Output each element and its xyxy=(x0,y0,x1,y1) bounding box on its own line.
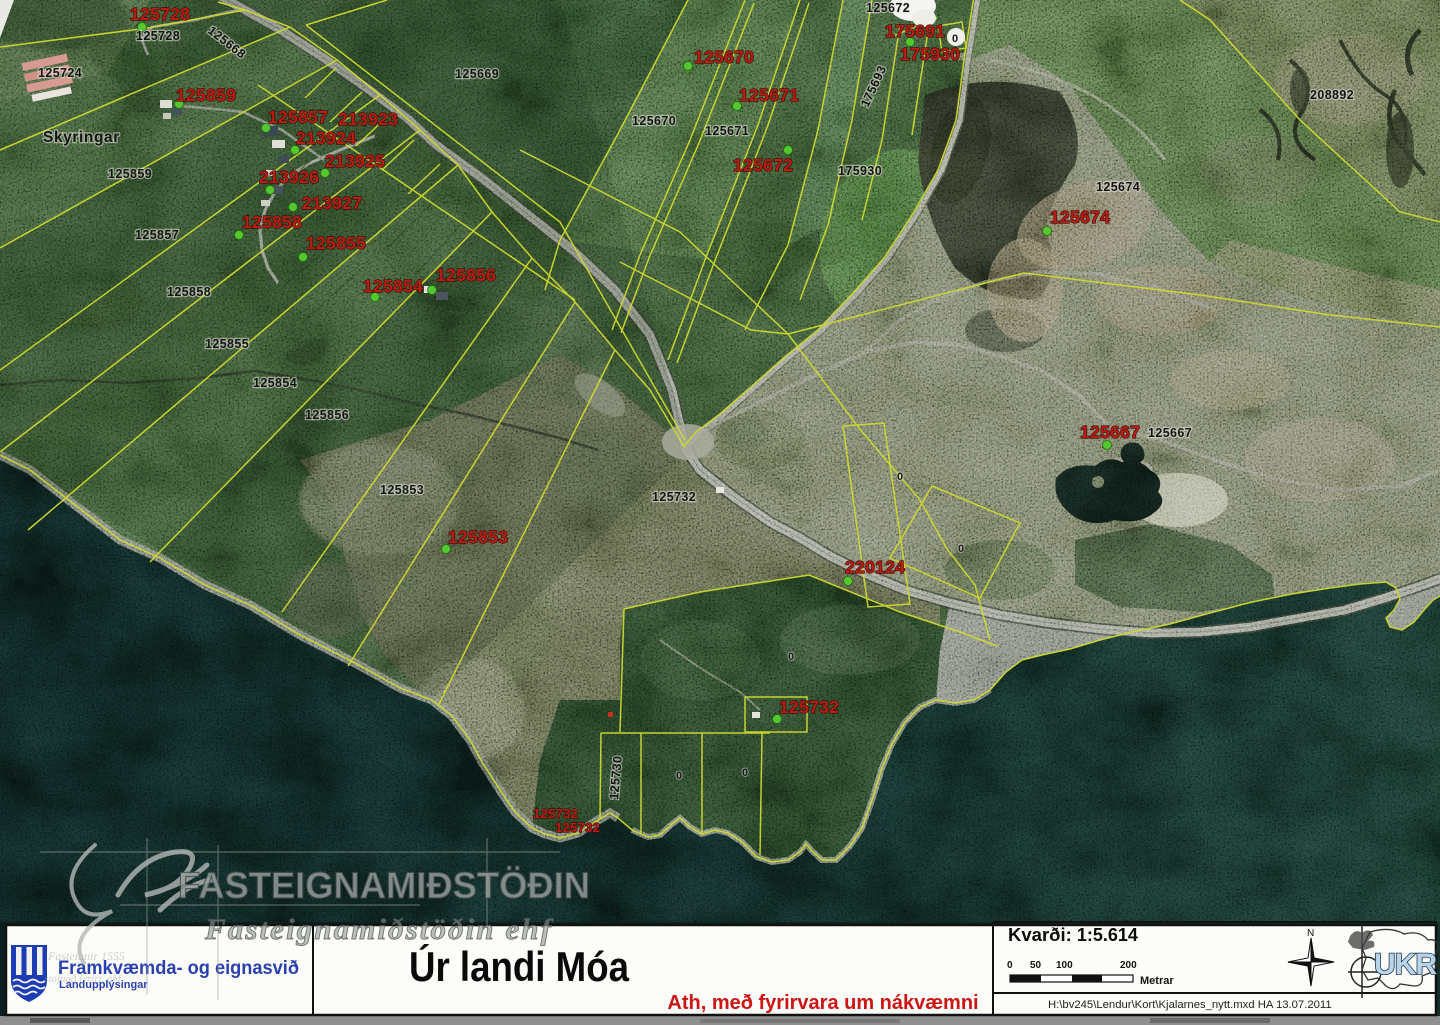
svg-text:125858: 125858 xyxy=(167,285,211,299)
svg-text:125853: 125853 xyxy=(380,483,424,497)
svg-text:175930: 175930 xyxy=(838,164,882,178)
svg-text:0: 0 xyxy=(676,770,682,782)
svg-text:0: 0 xyxy=(958,543,964,555)
svg-text:125855: 125855 xyxy=(306,233,366,253)
svg-text:125857: 125857 xyxy=(268,107,328,127)
svg-text:125857: 125857 xyxy=(135,228,179,242)
svg-text:125670: 125670 xyxy=(694,47,754,67)
svg-text:125674: 125674 xyxy=(1096,180,1140,194)
svg-text:0: 0 xyxy=(742,767,748,779)
svg-text:Kvarði: 1:5.614: Kvarði: 1:5.614 xyxy=(1008,924,1138,945)
svg-text:N: N xyxy=(1307,928,1314,939)
svg-text:220124: 220124 xyxy=(845,557,905,577)
svg-text:0: 0 xyxy=(788,651,794,663)
svg-text:200: 200 xyxy=(1120,960,1137,971)
svg-text:125670: 125670 xyxy=(632,114,676,128)
svg-text:175691: 175691 xyxy=(885,21,945,41)
svg-text:125671: 125671 xyxy=(739,85,799,105)
svg-text:UKR: UKR xyxy=(1374,948,1437,981)
svg-text:100: 100 xyxy=(1056,960,1073,971)
svg-text:125732: 125732 xyxy=(779,697,839,717)
svg-text:0: 0 xyxy=(897,471,903,483)
svg-text:125672: 125672 xyxy=(866,1,910,15)
svg-text:125728: 125728 xyxy=(130,4,190,24)
svg-text:H:\bv245\Lendur\Kort\Kjalarnes: H:\bv245\Lendur\Kort\Kjalarnes_nytt.mxd … xyxy=(1048,999,1332,1011)
svg-text:213926: 213926 xyxy=(259,167,319,187)
svg-text:213923: 213923 xyxy=(338,109,398,129)
svg-text:Metrar: Metrar xyxy=(1140,975,1174,987)
svg-text:125732: 125732 xyxy=(533,806,578,821)
svg-text:50: 50 xyxy=(1030,960,1042,971)
svg-text:125859: 125859 xyxy=(176,85,236,105)
svg-text:175930: 175930 xyxy=(900,44,960,64)
svg-text:213924: 213924 xyxy=(296,128,356,148)
svg-text:213925: 213925 xyxy=(325,151,385,171)
svg-text:125855: 125855 xyxy=(205,337,249,351)
svg-text:Skyringar: Skyringar xyxy=(43,129,120,146)
svg-text:125667: 125667 xyxy=(1148,426,1192,440)
svg-text:125732: 125732 xyxy=(652,490,696,504)
svg-text:Ath, með fyrirvara um nákvæmni: Ath, með fyrirvara um nákvæmni xyxy=(667,992,978,1014)
svg-text:125674: 125674 xyxy=(1050,207,1110,227)
svg-text:Fasteignamiðstöðin ehf: Fasteignamiðstöðin ehf xyxy=(204,913,554,946)
svg-text:125724: 125724 xyxy=(38,66,82,80)
svg-text:213927: 213927 xyxy=(302,193,362,213)
svg-text:125728: 125728 xyxy=(136,29,180,43)
svg-text:125732: 125732 xyxy=(555,820,600,835)
svg-text:Úr landi Móa: Úr landi Móa xyxy=(409,942,630,990)
svg-text:125856: 125856 xyxy=(305,408,349,422)
svg-text:FASTEIGNAMIÐSTÖÐIN: FASTEIGNAMIÐSTÖÐIN xyxy=(178,865,590,906)
svg-text:0: 0 xyxy=(1007,960,1013,971)
svg-text:Fasteignir 1555: Fasteignir 1555 xyxy=(47,949,125,963)
svg-text:125854: 125854 xyxy=(253,376,297,390)
svg-text:208892: 208892 xyxy=(1310,88,1354,102)
svg-text:125858: 125858 xyxy=(242,212,302,232)
svg-text:125669: 125669 xyxy=(455,67,499,81)
svg-text:125672: 125672 xyxy=(733,155,793,175)
svg-text:125859: 125859 xyxy=(108,167,152,181)
svg-text:stofnað fyrirt. ehf: stofnað fyrirt. ehf xyxy=(44,973,123,985)
svg-text:125856: 125856 xyxy=(436,265,496,285)
svg-text:125854: 125854 xyxy=(363,276,423,296)
svg-text:125853: 125853 xyxy=(448,527,508,547)
svg-text:125671: 125671 xyxy=(705,124,749,138)
svg-text:125667: 125667 xyxy=(1080,422,1140,442)
